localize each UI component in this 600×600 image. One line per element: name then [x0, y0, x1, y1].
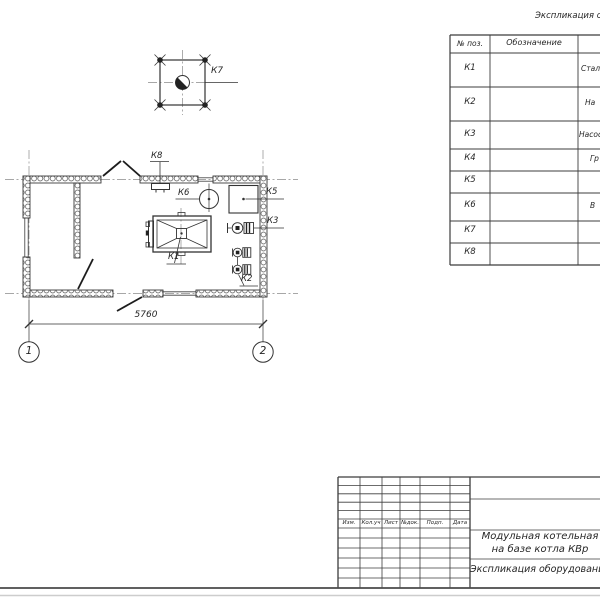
- table-row-pos: К5: [450, 176, 490, 185]
- table-row-name: В: [590, 202, 595, 210]
- table-row-pos: К1: [450, 64, 490, 73]
- axis-bubble-1: 1: [22, 346, 37, 358]
- table-row-name: Насос: [579, 131, 600, 139]
- titleblock-col-ndok: №док.: [400, 520, 420, 526]
- table-row-pos: К2: [450, 98, 490, 107]
- table-row-name: Стал: [581, 65, 600, 73]
- titleblock-project-line1: Модульная котельная: [470, 531, 600, 542]
- door-leaves: [78, 161, 142, 311]
- walls: [23, 176, 267, 297]
- col-header-designation: Обозначение: [490, 39, 578, 48]
- drawing-sheet: К7 К8 К6 К5 К3 К2 К1 5760 1 2 Экспликаци…: [0, 0, 600, 600]
- table-row-pos: К4: [450, 154, 490, 163]
- axis-bubble-2: 2: [256, 346, 271, 358]
- col-header-pos: № поз.: [450, 40, 490, 48]
- label-k5: К5: [266, 188, 277, 197]
- table-row-name: На: [585, 99, 595, 107]
- label-k6: К6: [178, 189, 189, 198]
- titleblock-col-data: Дата: [450, 520, 470, 526]
- titleblock-col-podp: Подп.: [420, 520, 450, 526]
- table-row-pos: К7: [450, 226, 490, 235]
- axis-centerlines: [5, 50, 298, 300]
- table-row-pos: К6: [450, 201, 490, 210]
- label-k1: К1: [168, 253, 179, 262]
- label-k7: К7: [211, 67, 223, 77]
- label-k8: К8: [151, 152, 162, 161]
- titleblock-col-izm: Изм.: [338, 520, 360, 526]
- titleblock-project-line2: на базе котла КВр: [470, 544, 600, 555]
- floor-plan-drawing: [0, 0, 600, 600]
- sheet-frame: [0, 588, 600, 596]
- dimension-text: 5760: [130, 311, 162, 321]
- table-row-pos: К8: [450, 248, 490, 257]
- titleblock-col-list: Лист: [382, 520, 400, 526]
- table-row-pos: К3: [450, 130, 490, 139]
- equipment-table-title: Экспликация оборудования: [535, 12, 600, 21]
- table-row-name: Гр: [590, 155, 599, 163]
- label-k3: К3: [267, 217, 278, 226]
- titleblock-col-koluch: Кол.уч: [360, 520, 382, 526]
- label-k2: К2: [241, 275, 252, 284]
- titleblock-sheet-title: Экспликация оборудования: [470, 565, 600, 575]
